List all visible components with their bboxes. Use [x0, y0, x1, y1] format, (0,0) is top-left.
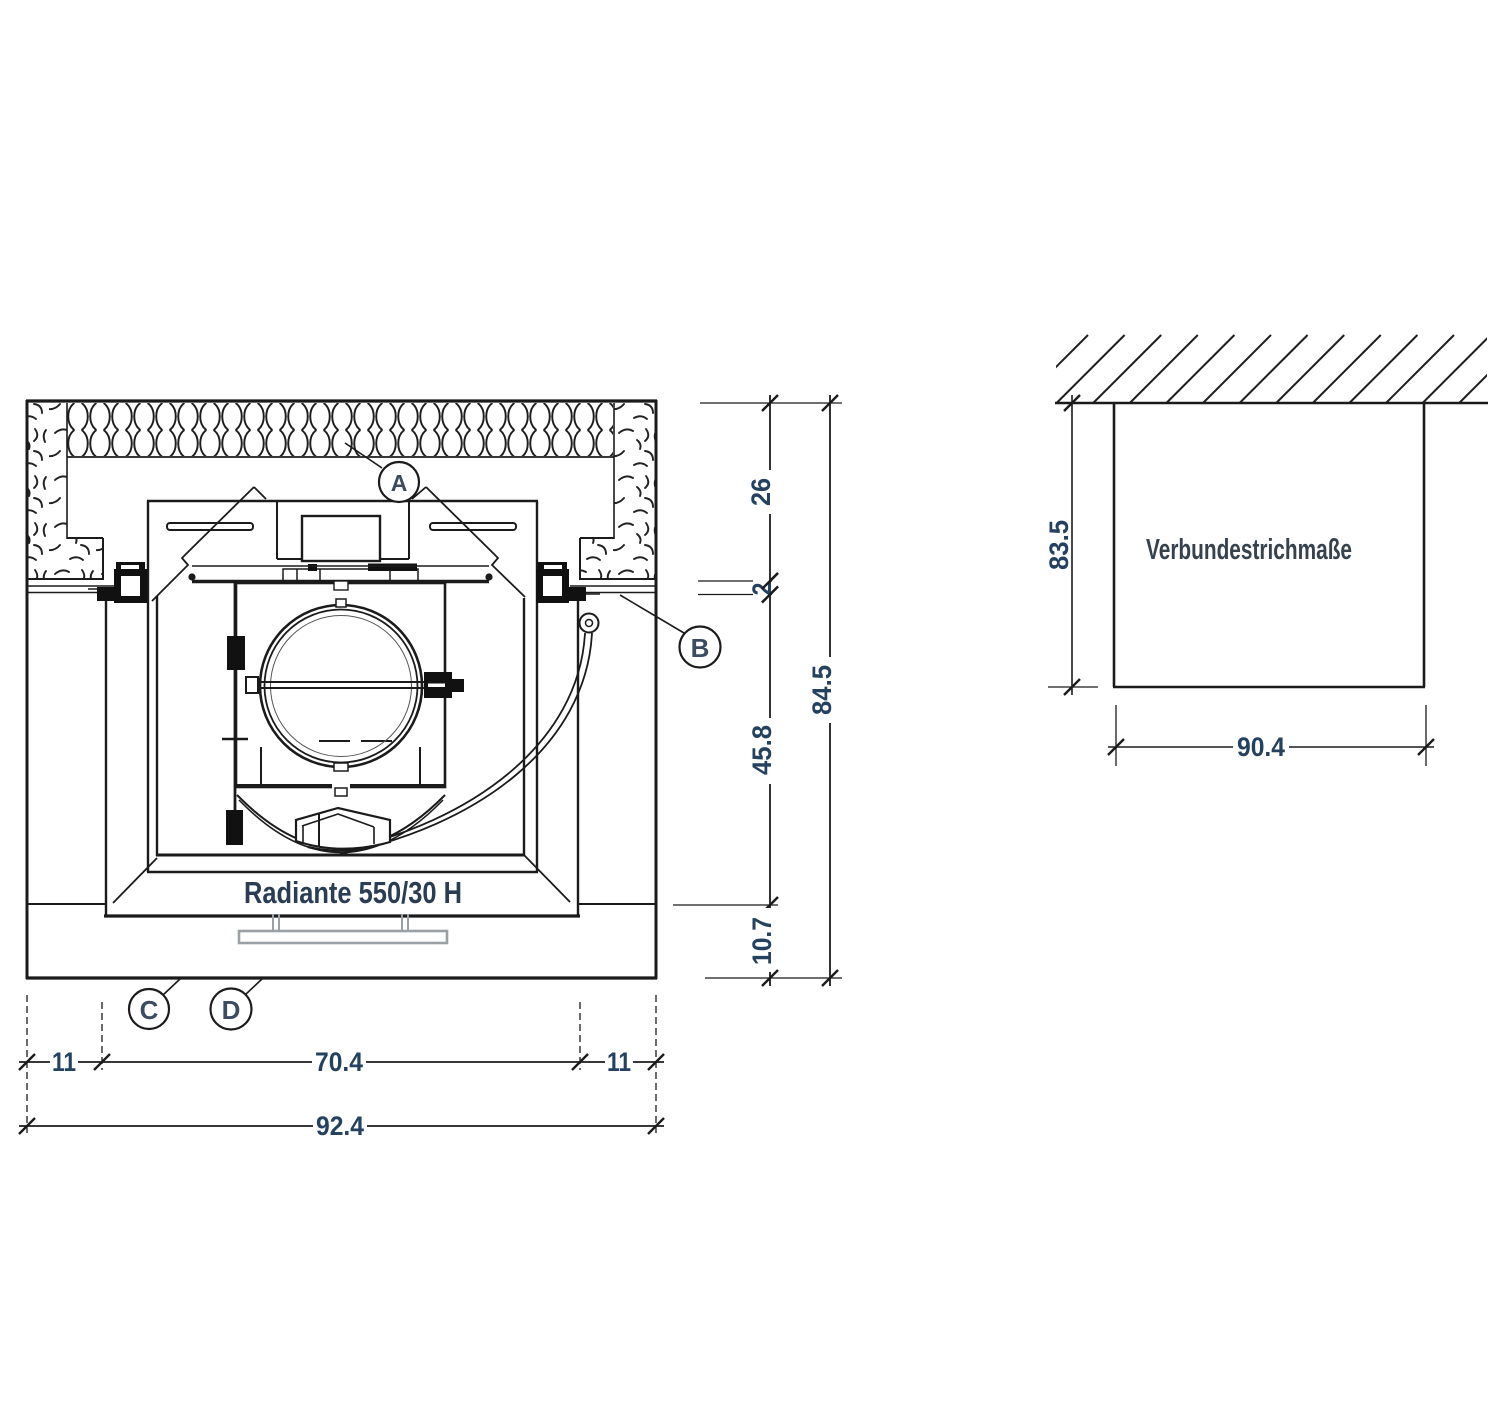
svg-text:D: D: [222, 995, 241, 1025]
svg-text:70.4: 70.4: [315, 1047, 363, 1077]
svg-text:B: B: [691, 633, 710, 663]
svg-text:90.4: 90.4: [1237, 732, 1285, 762]
svg-text:83.5: 83.5: [1044, 520, 1074, 570]
svg-text:26: 26: [746, 478, 776, 506]
svg-text:11: 11: [52, 1047, 76, 1077]
svg-text:84.5: 84.5: [807, 665, 837, 715]
svg-text:Radiante 550/30 H: Radiante 550/30 H: [244, 875, 462, 910]
svg-text:C: C: [140, 995, 159, 1025]
svg-text:A: A: [391, 470, 408, 496]
svg-text:10.7: 10.7: [747, 917, 777, 965]
svg-text:11: 11: [607, 1047, 631, 1077]
svg-text:92.4: 92.4: [316, 1111, 364, 1141]
svg-text:Verbundestrichmaße: Verbundestrichmaße: [1146, 534, 1352, 566]
svg-text:45.8: 45.8: [747, 725, 777, 775]
